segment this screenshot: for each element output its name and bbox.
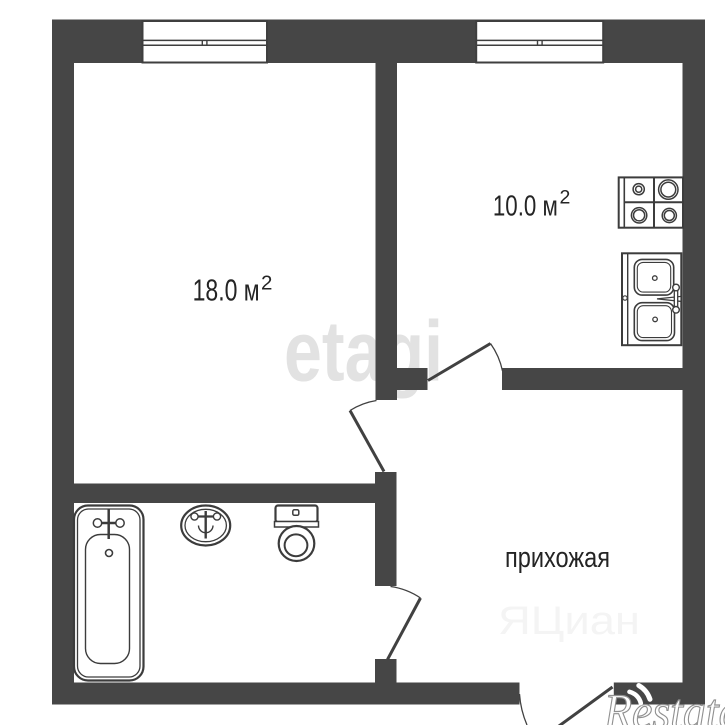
svg-text:ЯЦиан: ЯЦиан: [498, 599, 640, 643]
svg-text:2: 2: [560, 187, 571, 209]
svg-text:10.0 м: 10.0 м: [493, 191, 558, 223]
svg-text:прихожая: прихожая: [505, 542, 610, 574]
svg-text:2: 2: [261, 272, 272, 295]
svg-text:Restate: Restate: [603, 683, 725, 725]
svg-text:18.0 м: 18.0 м: [193, 274, 260, 308]
